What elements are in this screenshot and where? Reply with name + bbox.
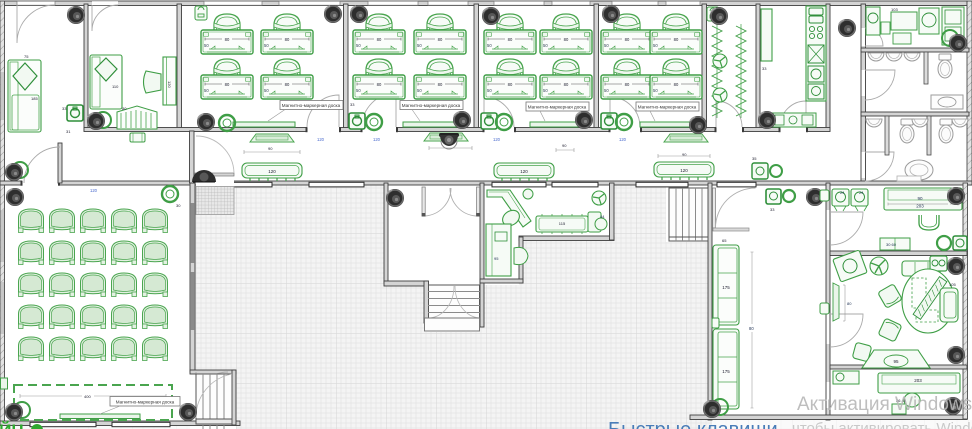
svg-text:24: 24	[859, 190, 864, 195]
svg-text:120: 120	[167, 81, 172, 88]
svg-text:Активация Windows: Активация Windows	[797, 394, 972, 415]
svg-text:80: 80	[847, 301, 852, 306]
svg-text:185: 185	[31, 96, 38, 101]
svg-text:203: 203	[914, 378, 922, 383]
svg-text:33: 33	[770, 207, 775, 212]
svg-text:75: 75	[24, 54, 29, 59]
svg-text:110: 110	[112, 84, 119, 89]
svg-text:80: 80	[122, 106, 127, 111]
svg-text:Магнитно-маркерная доска: Магнитно-маркерная доска	[402, 103, 461, 108]
svg-text:105: 105	[949, 282, 956, 287]
svg-text:120: 120	[619, 137, 627, 142]
svg-text:Магнитно-маркерная доска: Магнитно-маркерная доска	[282, 103, 341, 108]
svg-text:33: 33	[350, 102, 355, 107]
svg-text:ЛАЙН: ЛАЙН	[0, 421, 24, 429]
svg-text:120: 120	[90, 188, 98, 193]
svg-text:120: 120	[317, 137, 325, 142]
svg-text:30 60: 30 60	[886, 242, 897, 247]
svg-text:103: 103	[891, 7, 898, 12]
svg-text:Магнитно-маркерная доска: Магнитно-маркерная доска	[528, 105, 587, 110]
svg-text:Быстрые клавиши: Быстрые клавиши	[608, 419, 778, 429]
svg-text:120: 120	[373, 137, 381, 142]
svg-text:33: 33	[62, 106, 67, 111]
svg-text:44: 44	[600, 214, 605, 219]
svg-text:24: 24	[840, 190, 845, 195]
svg-text:35: 35	[752, 156, 757, 161]
svg-text:90: 90	[917, 196, 923, 201]
svg-text:90: 90	[268, 146, 273, 151]
svg-text:30: 30	[176, 203, 181, 208]
svg-text:203: 203	[916, 204, 924, 209]
svg-text:80: 80	[749, 326, 754, 331]
svg-text:Магнитно-маркерная доска: Магнитно-маркерная доска	[638, 105, 697, 110]
svg-text:90: 90	[562, 143, 567, 148]
svg-text:115: 115	[559, 221, 566, 226]
svg-text:120: 120	[493, 137, 501, 142]
svg-text:95: 95	[494, 256, 499, 261]
svg-text:65: 65	[722, 238, 727, 243]
svg-text:400: 400	[84, 394, 91, 399]
svg-text:Магнитно-маркерная доска: Магнитно-маркерная доска	[116, 400, 175, 405]
svg-text:31: 31	[66, 129, 71, 134]
svg-text:95: 95	[893, 359, 899, 364]
svg-text:чтобы активировать Windows: чтобы активировать Windows	[792, 420, 972, 429]
svg-text:33: 33	[762, 66, 767, 71]
